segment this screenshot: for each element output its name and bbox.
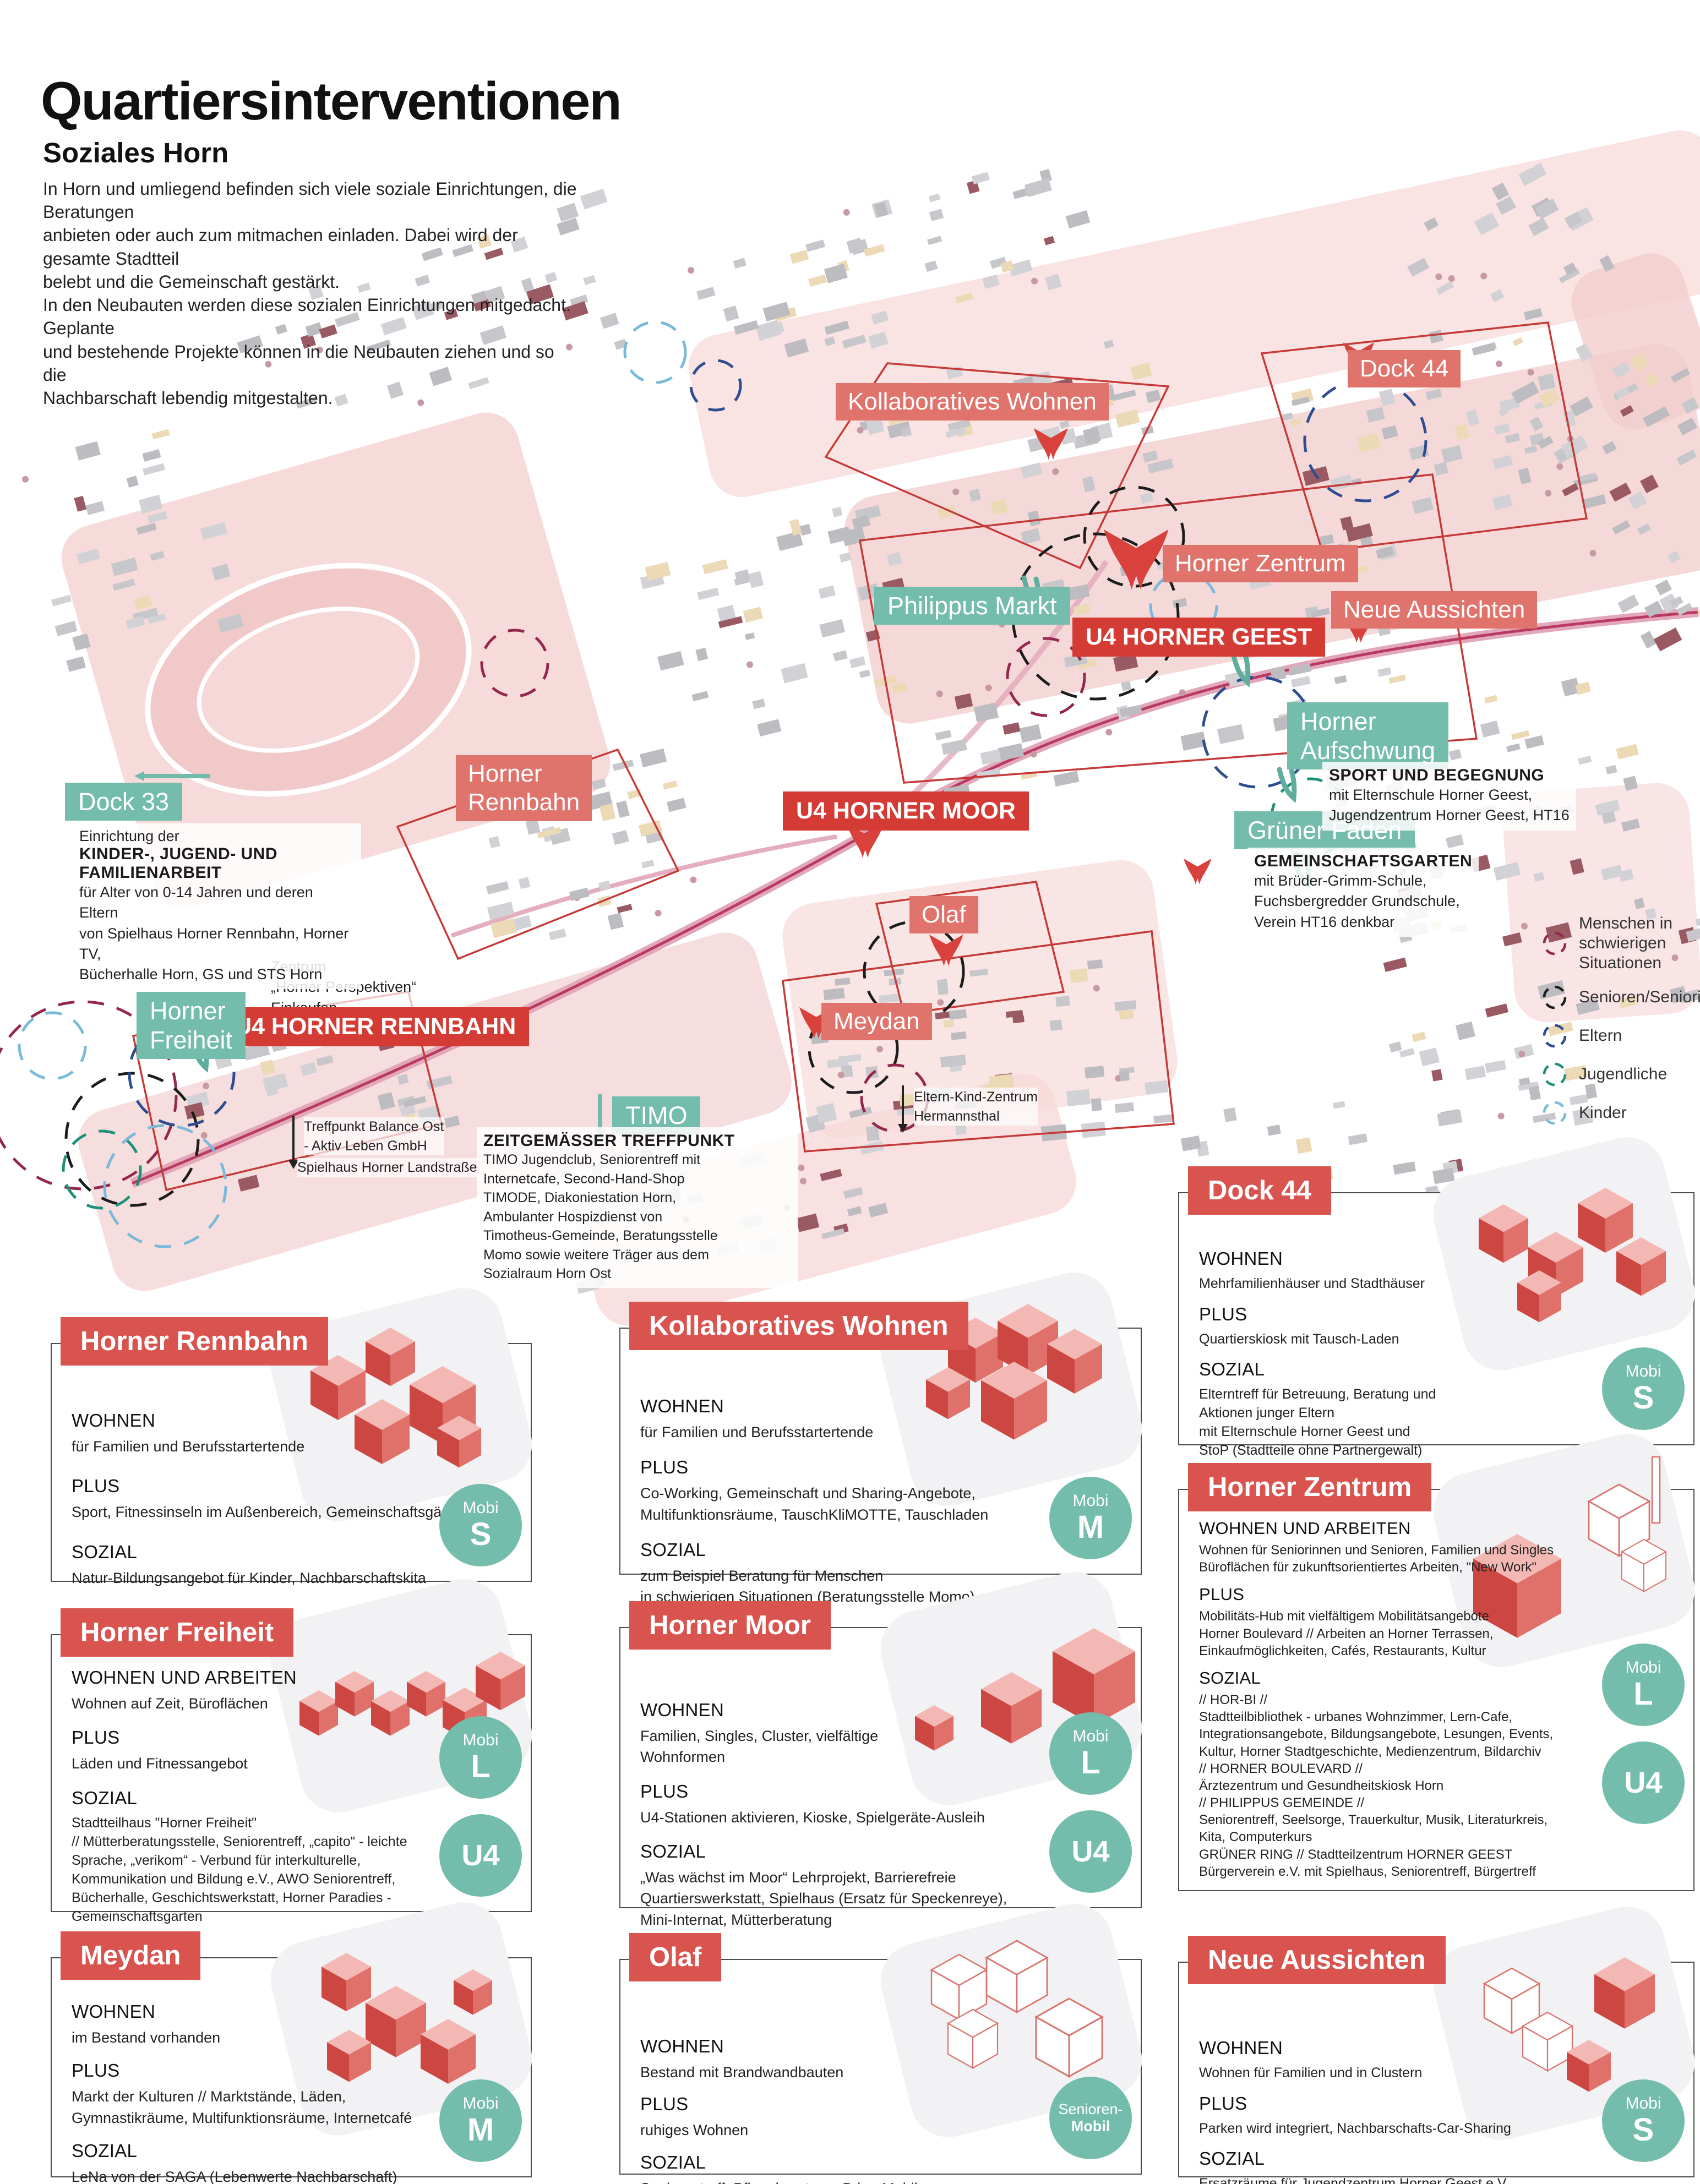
map-building (949, 1009, 967, 1019)
map-building (612, 830, 629, 845)
map-building (617, 904, 633, 913)
mobi-badge: MobiM (1049, 1477, 1132, 1559)
map-building (697, 587, 719, 600)
section-heading: WOHNEN (1199, 1248, 1663, 1269)
map-building (1223, 1107, 1236, 1122)
section-heading: SOZIAL (1199, 1668, 1611, 1688)
map-building (600, 804, 616, 822)
map-building (142, 449, 161, 462)
map-pin-icon (1184, 859, 1211, 884)
map-building (663, 780, 678, 790)
map-building (745, 632, 755, 640)
page-title: Quartiersinterventionen (41, 70, 621, 132)
u4-badge: U4 (1602, 1741, 1685, 1824)
card-title: Horner Freiheit (61, 1608, 293, 1657)
map-building (640, 749, 667, 768)
page-subtitle: Soziales Horn (43, 136, 228, 169)
map-building (743, 607, 763, 623)
map-building (1085, 1066, 1104, 1078)
section-heading: SOZIAL (640, 1841, 1110, 1862)
u4-badge: U4 (1049, 1810, 1132, 1893)
mobi-badge: MobiS (439, 1484, 522, 1566)
section-heading: WOHNEN UND ARBEITEN (72, 1667, 500, 1688)
map-building (935, 730, 952, 740)
map-building (1115, 1102, 1134, 1113)
section-body: für Familien und Berufsstartertende (72, 1436, 500, 1457)
card-horner-freiheit: Horner Freiheit WOHNEN UND ARBEITENWohne… (51, 1634, 532, 1912)
map-building (1484, 695, 1497, 704)
card-dock44: Dock 44 WOHNENMehrfamilienhäuser und Sta… (1178, 1192, 1694, 1445)
map-building (1066, 1089, 1091, 1107)
map-label-olaf: Olaf (909, 896, 978, 933)
map-building (600, 313, 619, 329)
legend: Menschen in schwierigen Situationen Seni… (1540, 914, 1700, 1137)
map-building (1485, 1060, 1506, 1073)
map-label-u4-horner-moor: U4 HORNER MOOR (783, 791, 1029, 831)
map-building (1119, 1010, 1134, 1020)
map-building (1419, 1047, 1440, 1066)
map-building (748, 571, 764, 588)
section-heading: WOHNEN (640, 1700, 1110, 1721)
map-building (899, 1094, 914, 1106)
mobi-badge: MobiM (439, 2079, 522, 2162)
map-building (937, 979, 949, 995)
map-building (924, 261, 938, 272)
map-building (1044, 236, 1055, 245)
section-heading: SOZIAL (640, 1539, 1110, 1560)
map-building (75, 441, 101, 461)
sport-note-title: SPORT UND BEGEGNUNG (1329, 766, 1570, 785)
map-building (1348, 1133, 1367, 1145)
timo-note-body: TIMO Jugendclub, Seniorentreff mit Inter… (483, 1150, 792, 1284)
group-circle (19, 1013, 85, 1079)
group-circle (625, 322, 685, 383)
map-building (1578, 756, 1592, 765)
map-building (866, 1126, 880, 1142)
map-building (1485, 1003, 1508, 1017)
section-body: LeNa von der SAGA (Lebenwerte Nachbarsch… (72, 2166, 500, 2184)
section-heading: PLUS (1199, 2093, 1663, 2114)
map-building (616, 800, 629, 818)
map-building (733, 258, 747, 269)
dashed-circle-icon (1540, 1099, 1569, 1127)
card-neue-aussichten: Neue Aussichten WOHNENWohnen für Familie… (1178, 1962, 1694, 2177)
map-label-meydan: Meydan (821, 1003, 932, 1040)
map-building (819, 619, 845, 637)
chevron-arrow-icon (1279, 769, 1294, 798)
map-building (607, 913, 624, 930)
section-body: Wohnen für Seniorinnen und Senioren, Fam… (1199, 1542, 1611, 1576)
section-heading: WOHNEN (72, 2001, 500, 2022)
section-body: für Familien und Berufsstartertende (640, 1422, 1110, 1443)
map-building (1616, 744, 1638, 760)
section-heading: SOZIAL (72, 1542, 500, 1563)
map-building (1654, 627, 1682, 651)
card-horner-moor: Horner Moor WOHNENFamilien, Singles, Clu… (619, 1627, 1142, 1908)
map-building (1334, 675, 1347, 684)
section-heading: WOHNEN (640, 2036, 1110, 2057)
map-building (1511, 730, 1529, 740)
map-tree (1495, 360, 1503, 368)
section-body: Sport, Fitnessinseln im Außenbereich, Ge… (72, 1501, 500, 1522)
map-building (823, 988, 844, 1001)
section-body: Natur-Bildungsangebot für Kinder, Nachba… (72, 1568, 500, 1588)
card-title: Horner Rennbahn (61, 1317, 328, 1366)
map-label-dock33: Dock 33 (65, 783, 182, 821)
map-building (657, 651, 684, 670)
treffpunkt-note: Treffpunkt Balance Ost - Aktiv Leben Gmb… (304, 1117, 444, 1155)
dashed-circle-icon (1540, 1060, 1569, 1089)
map-building (955, 1125, 967, 1135)
dashed-circle-icon (1540, 983, 1569, 1012)
map-building (583, 275, 596, 286)
map-building (859, 670, 870, 678)
section-heading: SOZIAL (1199, 2148, 1663, 2169)
map-building (1480, 720, 1500, 738)
map-building (1446, 834, 1464, 848)
map-building (1389, 1041, 1402, 1052)
dock33-note-intro: Einrichtung der (79, 828, 355, 845)
section-heading: PLUS (72, 1476, 500, 1497)
card-title: Dock 44 (1188, 1166, 1331, 1215)
mobi-badge: MobiL (1602, 1644, 1685, 1726)
map-building (641, 860, 654, 869)
poster: Quartiersinterventionen Soziales Horn In… (0, 0, 1700, 2184)
map-building (645, 562, 671, 581)
sport-note-body: mit Elternschule Horner Geest, Jugendzen… (1329, 785, 1570, 826)
map-building (805, 239, 825, 252)
garten-note: GEMEINSCHAFTSGARTEN mit Brüder-Grimm-Sch… (1247, 848, 1479, 937)
section-body: „Was wächst im Moor“ Lehrprojekt, Barrie… (640, 1867, 1110, 1930)
map-label-horner-zentrum: Horner Zentrum (1163, 545, 1358, 582)
legend-item: Senioren/Seniorinnen (1540, 983, 1700, 1012)
map-building (569, 888, 590, 901)
map-label-horner-freiheit: Horner Freiheit (137, 992, 246, 1059)
section-heading: PLUS (72, 1727, 500, 1748)
map-building (1145, 1080, 1168, 1095)
map-building (1217, 724, 1245, 744)
card-title: Olaf (629, 1933, 721, 1981)
map-building (66, 656, 85, 671)
map-tree (1105, 728, 1113, 736)
map-building (1506, 743, 1521, 752)
section-heading: SOZIAL (1199, 1359, 1663, 1380)
map-building (702, 559, 728, 574)
section-body: Bestand mit Brandwandbauten (640, 2062, 1110, 2083)
card-title: Kollaboratives Wohnen (629, 1302, 968, 1350)
legend-item: Eltern (1540, 1022, 1700, 1050)
section-body: Markt der Kulturen // Marktstände, Läden… (72, 2086, 500, 2128)
legend-label: Jugendliche (1579, 1064, 1667, 1084)
map-building (1571, 1173, 1592, 1185)
section-body: Elterntreff für Betreuung, Beratung und … (1199, 1385, 1663, 1460)
map-building (1291, 676, 1311, 687)
map-building (486, 881, 509, 894)
u4-badge: U4 (439, 1814, 522, 1897)
map-building (1333, 1101, 1345, 1109)
map-building (849, 656, 866, 668)
map-building (696, 287, 715, 300)
map-building (1002, 722, 1020, 734)
map-building (819, 586, 836, 599)
map-building (723, 305, 739, 321)
map-building (667, 798, 686, 812)
map-tree (21, 475, 30, 483)
map-building (840, 553, 852, 563)
card-kollaboratives-wohnen: Kollaboratives Wohnen WOHNENfür Familien… (619, 1328, 1142, 1575)
card-olaf: Olaf WOHNENBestand mit Brandwandbauten P… (619, 1959, 1142, 2175)
map-building (941, 739, 967, 755)
section-body: Stadtteilhaus "Horner Freiheit" // Mütte… (72, 1814, 500, 1926)
map-building (55, 621, 78, 636)
map-building (1412, 1031, 1426, 1042)
eltern-kind-zentrum-note: Eltern-Kind-Zentrum Hermannsthal (914, 1088, 1038, 1126)
section-body: im Bestand vorhanden (72, 2027, 500, 2048)
map-tree (689, 876, 698, 884)
map-building (781, 663, 808, 684)
map-building (74, 496, 86, 512)
section-heading: WOHNEN (640, 1396, 1110, 1417)
map-building (51, 595, 72, 607)
map-building (1121, 681, 1131, 691)
section-body: Läden und Fitnessangebot (72, 1753, 500, 1774)
garten-note-body: mit Brüder-Grimm-Schule, Fuchsbergredder… (1254, 871, 1472, 932)
map-building (143, 463, 165, 476)
map-building (824, 264, 848, 283)
map-building (927, 236, 942, 245)
map-building (929, 194, 941, 203)
map-building (1655, 580, 1672, 596)
section-body: Quartierskiosk mit Tausch-Laden (1199, 1330, 1663, 1350)
mobi-badge: MobiS (1602, 1347, 1685, 1430)
section-body: Wohnen für Familien und in Clustern (1199, 2063, 1663, 2083)
section-body: Co-Working, Gemeinschaft und Sharing-Ang… (640, 1483, 1110, 1525)
dock33-note: Einrichtung der KINDER-, JUGEND- UND FAM… (73, 823, 361, 989)
map-tree (687, 266, 695, 275)
map-building (1524, 735, 1544, 749)
sport-note: SPORT UND BEGEGNUNG mit Elternschule Hor… (1322, 762, 1576, 831)
map-building (580, 189, 608, 209)
map-building (1055, 996, 1070, 1007)
section-body: Ersatzräume für Jugendzentrum Horner Gee… (1199, 2174, 1663, 2184)
section-heading: PLUS (640, 1781, 1110, 1802)
section-heading: PLUS (1199, 1304, 1663, 1325)
section-body: // HOR-BI // Stadtteilbibliothek - urban… (1199, 1691, 1611, 1880)
map-building (1432, 1168, 1454, 1184)
map-building (1512, 337, 1523, 346)
legend-item: Jugendliche (1540, 1060, 1700, 1089)
map-building (127, 476, 139, 488)
map-building (790, 250, 809, 264)
map-building (85, 501, 105, 515)
map-building (1617, 594, 1639, 613)
card-title: Neue Aussichten (1188, 1936, 1446, 1984)
dashed-circle-icon (1540, 929, 1569, 958)
map-tree (654, 909, 662, 918)
map-building (800, 524, 811, 536)
map-building (519, 877, 531, 889)
map-building (1296, 1137, 1312, 1154)
map-building (152, 429, 170, 440)
legend-item: Menschen in schwierigen Situationen (1540, 914, 1700, 973)
map-building (1393, 1161, 1416, 1175)
map-label-horner-aufschwung: Horner Aufschwung (1287, 702, 1448, 769)
map-tree (746, 660, 754, 669)
card-horner-zentrum: Horner Zentrum WOHNEN UND ARBEITENWohnen… (1178, 1489, 1694, 1891)
section-heading: PLUS (72, 2060, 500, 2081)
map-label-horner-rennbahn: Horner Rennbahn (456, 755, 592, 821)
dock33-note-body: für Alter von 0-14 Jahren und deren Elte… (79, 882, 355, 985)
card-title: Meydan (61, 1931, 200, 1980)
map-building (1119, 1071, 1130, 1082)
map-building (1605, 765, 1617, 774)
mobi-badge: MobiL (439, 1716, 522, 1799)
map-building (1377, 667, 1392, 677)
map-building (1087, 959, 1103, 969)
spielhaus-note: Spielhaus Horner Landstraße (297, 1158, 477, 1177)
intro-text: In Horn und umliegend befinden sich viel… (43, 177, 582, 409)
section-body: Seniorentreff, Pflegeberatung, Bring-Mob… (640, 2178, 1110, 2184)
map-building (598, 881, 611, 891)
map-building (1449, 749, 1462, 761)
section-body: Mehrfamilienhäuser und Stadthäuser (1199, 1274, 1663, 1294)
map-building (1053, 771, 1079, 787)
map-label-dock44: Dock 44 (1348, 350, 1461, 387)
section-heading: PLUS (640, 1457, 1110, 1478)
section-heading: WOHNEN (72, 1410, 500, 1431)
section-body: Parken wird integriert, Nachbarschafts-C… (1199, 2119, 1663, 2139)
map-building (692, 691, 709, 701)
section-heading: SOZIAL (72, 1788, 500, 1809)
timo-note-title: ZEITGEMÄSSER TREFFPUNKT (483, 1132, 792, 1150)
map-building (1456, 1022, 1475, 1040)
map-building (1529, 1086, 1541, 1101)
map-building (525, 819, 540, 835)
map-building (1388, 675, 1405, 684)
map-building (1267, 1124, 1281, 1135)
map-building (1091, 1098, 1102, 1111)
section-body: U4-Stationen aktivieren, Kioske, Spielge… (640, 1807, 1110, 1828)
map-building (1472, 343, 1495, 356)
map-building (1025, 178, 1052, 197)
map-building (752, 698, 765, 709)
section-body: Mobilitäts-Hub mit vielfältigem Mobilitä… (1199, 1608, 1611, 1659)
card-horner-rennbahn: Horner Rennbahn WOHNENfür Familien und B… (51, 1343, 532, 1582)
section-heading: WOHNEN UND ARBEITEN (1199, 1519, 1611, 1538)
section-heading: SOZIAL (640, 2152, 1110, 2173)
map-building (695, 648, 708, 662)
map-building (1383, 958, 1407, 972)
section-heading: WOHNEN (1199, 2038, 1663, 2059)
map-building (757, 719, 781, 737)
map-building (1066, 210, 1091, 228)
legend-label: Kinder (1579, 1103, 1627, 1123)
legend-label: Senioren/Seniorinnen (1579, 987, 1700, 1007)
map-building (1050, 1019, 1062, 1031)
card-meydan: Meydan WOHNENim Bestand vorhanden PLUSMa… (51, 1957, 532, 2177)
map-building (832, 507, 842, 517)
map-building (833, 650, 848, 661)
map-building (972, 172, 990, 184)
legend-label: Eltern (1579, 1026, 1622, 1046)
map-building (1431, 1069, 1442, 1081)
dashed-circle-icon (1540, 1022, 1569, 1050)
timo-note: ZEITGEMÄSSER TREFFPUNKT TIMO Jugendclub,… (477, 1127, 798, 1288)
map-label-philippus-markt: Philippus Markt (874, 587, 1070, 625)
map-label-neue-aussichten: Neue Aussichten (1331, 591, 1537, 629)
map-building (1019, 724, 1042, 742)
section-heading: PLUS (640, 2094, 1110, 2115)
senioren-mobil-badge: Senioren-Mobil (1049, 2077, 1132, 2159)
map-building (1465, 1066, 1486, 1080)
map-label-u4-horner-geest: U4 HORNER GEEST (1072, 618, 1325, 657)
section-body: Wohnen auf Zeit, Büroflächen (72, 1693, 500, 1714)
section-heading: SOZIAL (72, 2141, 500, 2161)
section-heading: PLUS (1199, 1585, 1611, 1604)
map-building (943, 1020, 954, 1028)
map-building (808, 274, 827, 287)
card-title: Horner Moor (629, 1601, 831, 1650)
map-building (1153, 1114, 1174, 1123)
mobi-badge: MobiS (1602, 2079, 1685, 2162)
mobi-badge: MobiL (1049, 1712, 1132, 1795)
section-body: Familien, Singles, Cluster, vielfältige … (640, 1726, 1110, 1768)
map-tree (1497, 1112, 1505, 1120)
map-building (549, 929, 566, 940)
map-building (929, 209, 944, 221)
map-label-kollaboratives-wohnen: Kollaboratives Wohnen (836, 383, 1109, 421)
legend-item: Kinder (1540, 1099, 1700, 1127)
legend-label: Menschen in schwierigen Situationen (1579, 914, 1700, 973)
map-tree (842, 208, 851, 216)
section-body: ruhiges Wohnen (640, 2120, 1110, 2141)
map-building (1070, 968, 1088, 983)
map-building (489, 836, 500, 848)
map-label-u4-horner-rennbahn: U4 HORNER RENNBAHN (221, 1007, 529, 1046)
card-title: Horner Zentrum (1188, 1463, 1431, 1511)
garten-note-title: GEMEINSCHAFTSGARTEN (1254, 852, 1472, 871)
dock33-note-title: KINDER-, JUGEND- UND FAMILIENARBEIT (79, 845, 355, 882)
